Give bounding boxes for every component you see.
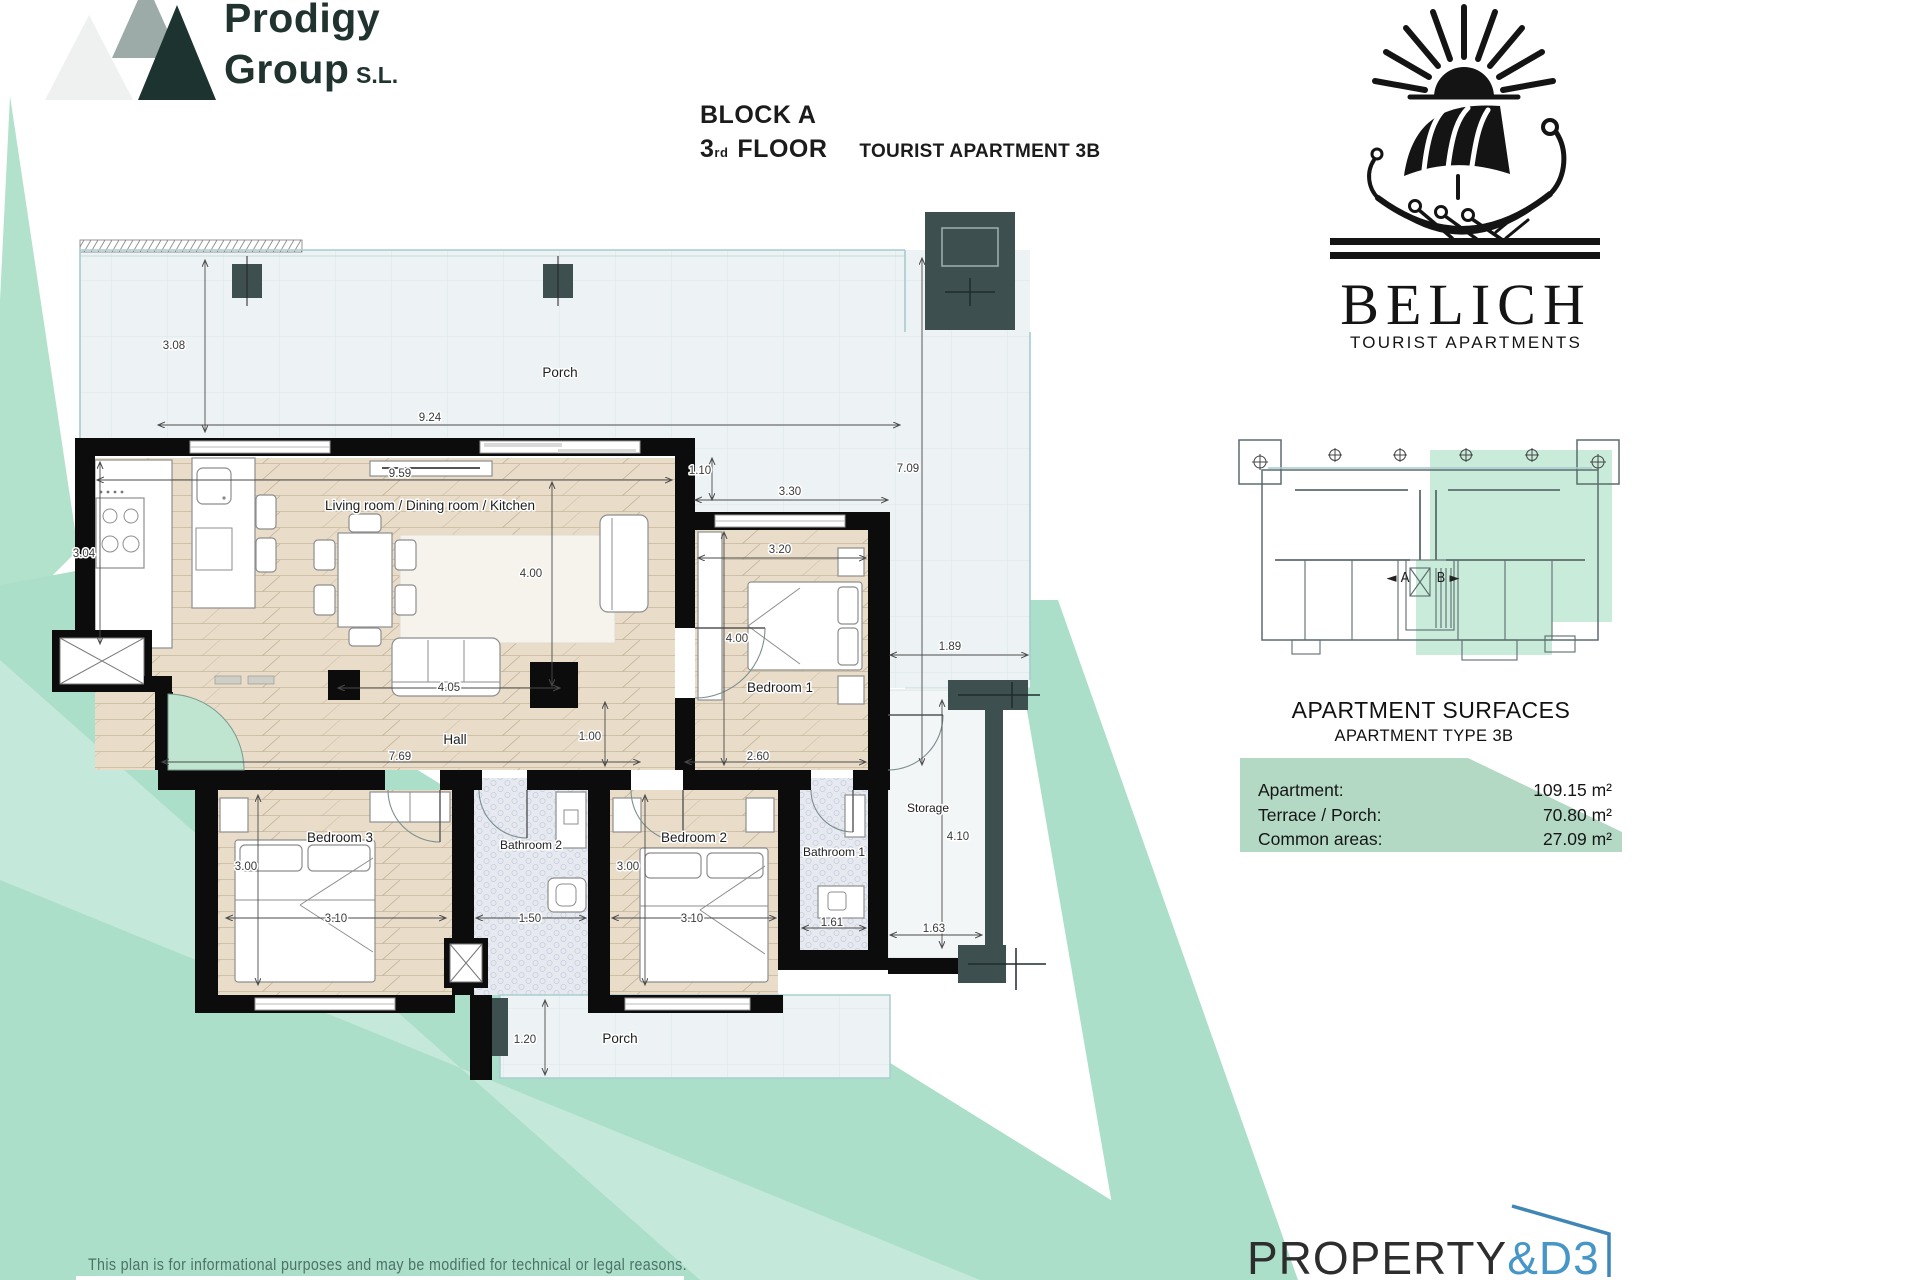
dim-living-depth: 4.00 [520,568,542,580]
dim-bedroom2-width: 3.10 [681,913,703,925]
stove-icon [96,498,144,568]
nightstand-icon [838,676,864,704]
surfaces-row-value: 27.09 m² [1543,829,1612,849]
property-d3-text: PROPERTY&D3 [1247,1232,1600,1280]
chair-icon [314,540,335,570]
flyer-artwork: Prodigy Group S.L. [0,0,1920,1280]
dim-living-width: 9.59 [389,468,411,480]
prodigy-suffix: S.L. [356,62,398,88]
dining-table-icon [338,533,392,627]
dim-porch-bottom-depth: 1.20 [514,1034,536,1046]
header-floor-number: 3 [700,135,714,164]
belich-name: BELICH [1340,272,1591,337]
surfaces-panel: APARTMENT SURFACES APARTMENT TYPE 3B Apa… [1240,697,1622,852]
floor-plan: 3.08 9.24 9.59 3.04 4.00 4.05 1.10 3.30 … [52,212,1046,1080]
dim-bathroom1-width: 1.61 [821,917,843,929]
dim-bedroom1-offset: 1.10 [689,465,711,477]
surfaces-title: APARTMENT SURFACES [1292,697,1571,723]
dim-storage-width: 1.63 [923,923,945,935]
dim-bedroom3-width: 3.10 [325,913,347,925]
plan-header: BLOCK A 3rdFLOOR TOURIST APARTMENT 3B [700,101,1100,164]
surfaces-row-label: Apartment: [1258,780,1344,800]
header-block-label: BLOCK A [700,101,1100,130]
washbasin-icon [818,886,864,918]
dim-hall-depth: 1.00 [579,731,601,743]
nightstand-icon [838,548,864,576]
storage-floor [888,690,988,958]
label-porch-top: Porch [542,365,577,380]
surfaces-row-value: 109.15 m² [1533,780,1612,800]
header-floor-word: FLOOR [737,135,827,164]
toilet-icon [548,878,586,912]
surfaces-row-label: Terrace / Porch: [1258,805,1382,825]
dim-bedroom1-width: 3.20 [769,544,791,556]
overview-highlight-b [1416,450,1612,655]
label-living: Living room / Dining room / Kitchen [325,498,535,513]
dim-terrace-right-width: 1.89 [939,641,961,653]
chair-icon [314,585,335,615]
label-storage: Storage [907,801,949,815]
chair-icon [395,585,416,615]
header-floor-line: 3rdFLOOR TOURIST APARTMENT 3B [700,135,1100,164]
dim-porch-width: 9.24 [419,412,442,424]
overview-label-b: B ► [1436,571,1459,586]
flyer-page: Prodigy Group S.L. [0,0,1920,1280]
prodigy-word2: Group [224,46,349,92]
label-bedroom2: Bedroom 2 [661,830,727,845]
dim-bedroom2-depth: 3.00 [617,861,639,873]
dim-hall-width: 7.69 [389,751,411,763]
bg-left-wedge [0,96,78,628]
dim-sofa-width: 4.05 [438,682,460,694]
dim-bathroom2-width: 1.50 [519,913,541,925]
surfaces-row-label: Common areas: [1258,829,1383,849]
chair-icon [349,628,381,646]
rug-icon [400,535,615,643]
overview-plan: ◄ A B ► [1239,440,1619,660]
label-bathroom1: Bathroom 1 [803,845,865,859]
dim-kitchen-depth: 3.04 [73,548,96,560]
bottom-white-bar [76,1276,684,1280]
header-unit-label: TOURIST APARTMENT 3B [859,141,1100,163]
belich-ship-icon [1330,7,1600,259]
vent-icon [248,676,274,684]
dim-hall-right: 2.60 [747,751,769,763]
property-d3-logo: PROPERTY&D3 [1247,1206,1609,1280]
property-d3-word: &D3 [1507,1232,1599,1280]
sink-icon [197,468,231,504]
prodigy-logo: Prodigy Group S.L. [45,0,398,100]
chair-icon [349,514,381,532]
label-bedroom1: Bedroom 1 [747,680,813,695]
overview-label-a: ◄ A [1386,571,1409,586]
surfaces-subtitle: APARTMENT TYPE 3B [1335,727,1514,745]
dim-porch-height: 3.08 [163,340,185,352]
surfaces-row-value: 70.80 m² [1543,805,1612,825]
property-word: PROPERTY [1247,1232,1507,1280]
stool-icon [256,495,276,529]
disclaimer-text: This plan is for informational purposes … [88,1255,687,1275]
vent-icon [215,676,241,684]
nightstand-icon [220,798,248,832]
nightstand-icon [746,798,774,832]
porch-mid-floor [675,442,905,512]
porch-top-floor [80,250,905,442]
closet-ic­on [698,532,722,700]
header-floor-ordinal: rd [714,145,728,160]
label-hall: Hall [443,732,466,747]
dim-storage-height: 4.10 [947,831,969,843]
chair-icon [395,540,416,570]
stool-icon [256,538,276,572]
armchair-icon [600,515,648,612]
label-porch-bottom: Porch [602,1031,637,1046]
dim-bedroom1-outer: 3.30 [779,486,801,498]
dim-terrace-right-height: 7.09 [897,463,919,475]
cabinet-icon [845,795,865,837]
label-bedroom3: Bedroom 3 [307,830,373,845]
label-bathroom2: Bathroom 2 [500,838,562,852]
belich-logo: BELICH TOURIST APARTMENTS [1330,7,1600,352]
dim-bedroom1-depth: 4.00 [726,633,748,645]
prodigy-word1: Prodigy [224,0,380,41]
dim-bedroom3-depth: 3.00 [235,861,257,873]
belich-tagline: TOURIST APARTMENTS [1350,333,1582,352]
